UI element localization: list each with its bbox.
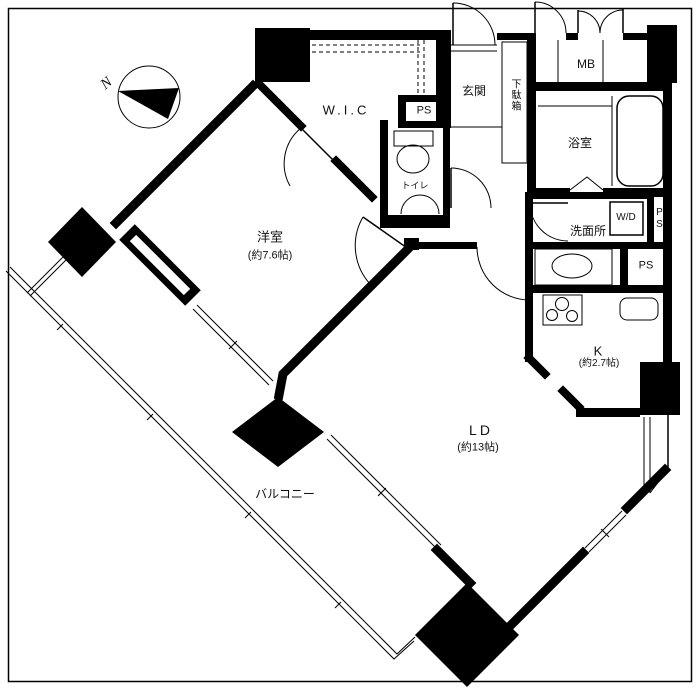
- room-label-meter-box: MB: [577, 58, 595, 70]
- room-size-living-dining: (約13帖): [457, 443, 499, 454]
- room-label-shoe-cabinet: 下駄箱: [509, 79, 519, 112]
- bedroom-shutter-box: [127, 232, 193, 298]
- floor-plan: N W.I.C PS 玄関 下駄箱 MB 浴室 トイレ 洗面所 W/D PS P…: [0, 0, 700, 690]
- room-size-western-room: (約7.6帖): [248, 251, 293, 262]
- pillars: [48, 25, 680, 687]
- doors: [284, 2, 623, 300]
- room-label-western-room: 洋室: [257, 231, 283, 244]
- diagonal-walls: [116, 84, 665, 627]
- room-label-balcony: バルコニー: [255, 488, 315, 500]
- room-label-washroom: 洗面所: [570, 225, 606, 237]
- room-label-bathroom: 浴室: [568, 137, 592, 149]
- room-label-kitchen: K: [594, 345, 603, 358]
- room-size-kitchen: (約2.7帖): [579, 359, 620, 369]
- room-label-entrance: 玄関: [462, 85, 486, 97]
- room-label-wic: W.I.C: [323, 104, 370, 117]
- room-label-toilet: トイレ: [401, 182, 428, 191]
- wic-shelf-dashed: [312, 40, 424, 95]
- room-label-ps-washroom: PS: [654, 207, 664, 231]
- compass-icon: [118, 66, 180, 128]
- room-label-washer-dryer: W/D: [616, 213, 635, 223]
- room-label-living-dining: LD: [469, 423, 493, 437]
- room-label-ps-wic: PS: [417, 106, 432, 117]
- room-label-ps-lower: PS: [639, 261, 654, 272]
